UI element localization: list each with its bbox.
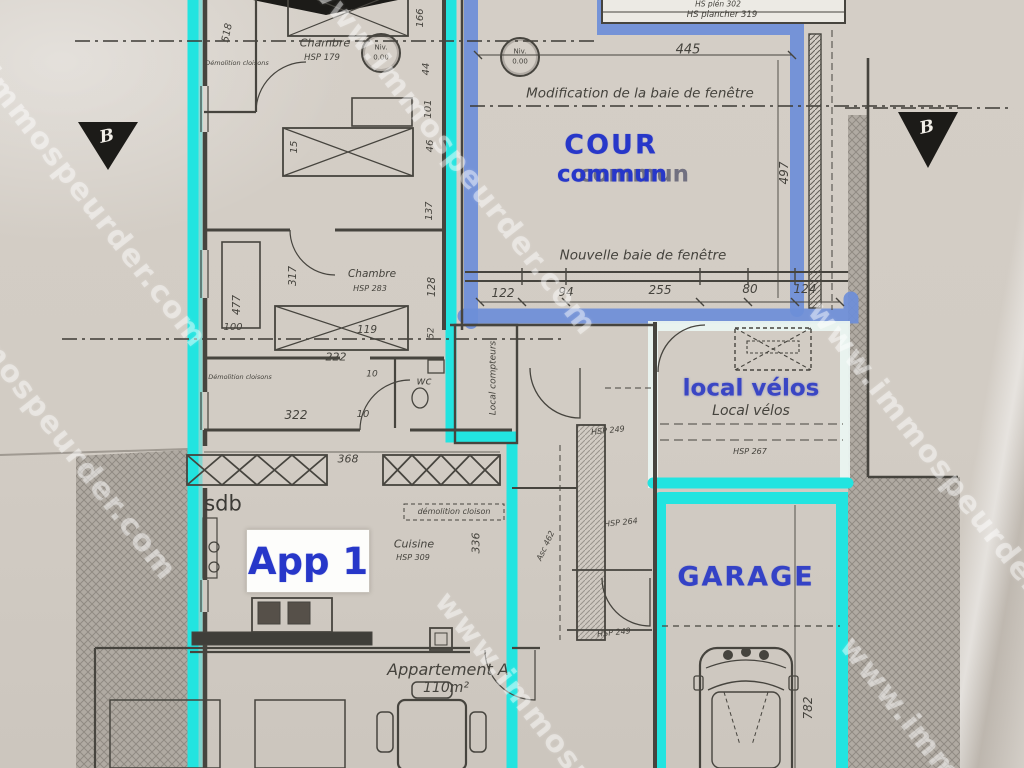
dim-445: 445 (676, 44, 701, 57)
niv-label: Niv. (513, 49, 526, 56)
dim-119: 119 (357, 325, 377, 336)
app1-badge-text: App 1 (248, 540, 368, 583)
dim-15: 15 (290, 141, 300, 154)
note-demolition-1: Démolition cloisons (205, 60, 268, 67)
note-modification: Modification de la baie de fenêtre (526, 87, 754, 101)
dim-166: 166 (416, 8, 426, 27)
dim-322: 322 (285, 409, 308, 421)
dim-100: 100 (223, 323, 242, 333)
cour-title-line1: COUR (564, 132, 657, 159)
dim-44: 44 (422, 63, 432, 76)
room-hsp-chambre1: HSP 179 (304, 54, 340, 63)
dim-368: 368 (338, 454, 359, 465)
note-demolition-2: Démolition cloisons (208, 374, 271, 381)
dim-128: 128 (427, 277, 438, 297)
dim-80: 80 (742, 283, 757, 295)
dim-336: 336 (471, 533, 482, 554)
dim-52: 52 (428, 327, 437, 338)
local-velos-label: Local vélos (712, 404, 790, 418)
app1-badge: App 1 (246, 529, 370, 593)
niv-value: 0.00 (512, 59, 528, 66)
dim-10a: 10 (357, 410, 370, 420)
note-demolition-3: démolition cloison (418, 508, 491, 516)
dim-222: 222 (326, 352, 347, 363)
dim-317: 317 (288, 266, 299, 286)
dim-10b: 10 (366, 371, 377, 380)
dim-122: 122 (492, 287, 515, 299)
floorplan-photo: B B Niv. 0.00 Niv. 0.00 Chambre HSP 179 … (0, 0, 1024, 768)
room-label-cuisine: Cuisine (394, 539, 434, 550)
local-velos-hsp: HSP 267 (733, 448, 767, 456)
hs-plancher-label: HS plancher 319 (687, 11, 758, 20)
hs-plen-label: HS plén 302 (695, 0, 741, 8)
garage-lines (662, 505, 840, 768)
dim-137: 137 (425, 201, 435, 220)
section-triangles (78, 0, 958, 170)
local-velos-title: local vélos (683, 378, 820, 401)
dim-255: 255 (649, 284, 672, 296)
dim-124: 124 (794, 283, 817, 295)
room-label-chambre2: Chambre (348, 269, 396, 280)
room-hsp-chambre2: HSP 283 (353, 285, 387, 293)
note-nouvelle-baie: Nouvelle baie de fenêtre (560, 249, 727, 263)
dim-782: 782 (802, 697, 814, 720)
room-label-local-compteurs: Local compteurs (490, 341, 499, 415)
apartment-area: 110m² (423, 681, 469, 695)
room-hsp-cuisine: HSP 309 (396, 554, 430, 562)
room-label-wc: wc (416, 376, 431, 387)
cour-title-line2: commun (557, 164, 667, 187)
dim-477: 477 (232, 295, 243, 315)
niv-circle-2: Niv. 0.00 (500, 37, 540, 77)
garage-title: GARAGE (677, 564, 814, 591)
room-label-sdb: sdb (204, 494, 242, 515)
dim-497: 497 (778, 162, 790, 185)
car-topview (694, 648, 798, 768)
